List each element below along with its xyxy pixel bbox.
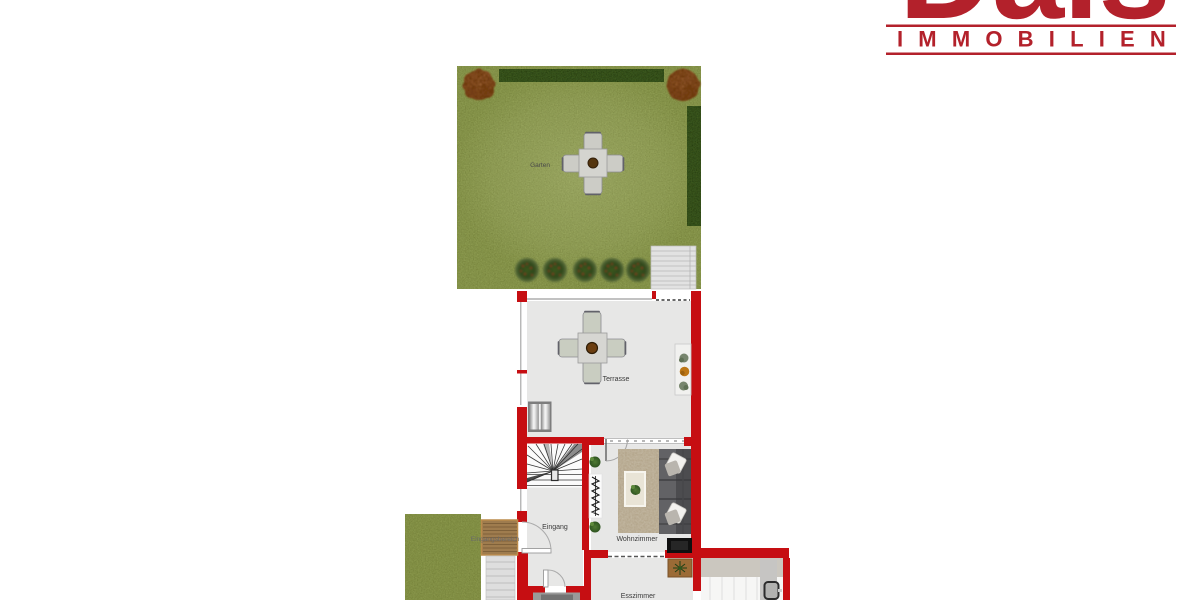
svg-text:Wohnzimmer: Wohnzimmer [616,536,658,543]
svg-text:Eingangsbereich: Eingangsbereich [471,536,520,543]
svg-text:Eingang: Eingang [542,524,568,531]
svg-text:Esszimmer: Esszimmer [621,593,656,600]
svg-text:Terrasse: Terrasse [603,376,630,383]
svg-text:IMMOBILIEN: IMMOBILIEN [897,27,1181,52]
svg-text:Garten: Garten [530,162,550,169]
